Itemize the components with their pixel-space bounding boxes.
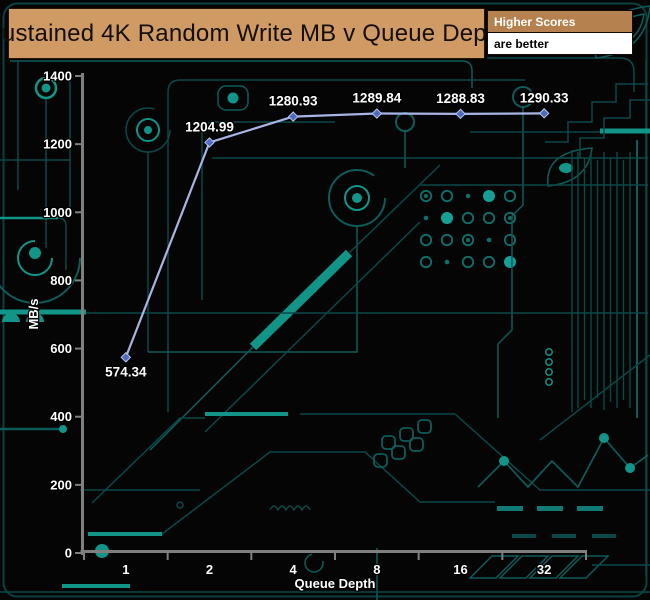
x-tick-label: 1 <box>122 562 129 577</box>
data-point-marker <box>456 109 465 118</box>
x-tick-label: 16 <box>453 562 467 577</box>
y-tick-label: 1000 <box>43 205 72 220</box>
y-tick-label: 200 <box>50 477 72 492</box>
data-point-marker <box>289 112 298 121</box>
y-tick-label: 600 <box>50 341 72 356</box>
x-tick-label: 32 <box>537 562 551 577</box>
data-point-label: 1204.99 <box>185 119 234 134</box>
y-tick-label: 1200 <box>43 137 72 152</box>
legend-box: Higher Scores are better <box>487 10 633 55</box>
y-tick-label: 0 <box>65 546 72 561</box>
x-tick-label: 8 <box>373 562 380 577</box>
screenshot-root: 020040060080010001200140012481632Queue D… <box>0 0 650 600</box>
chart-title: Sustained 4K Random Write MB v Queue Dep… <box>8 8 485 59</box>
data-point-marker <box>540 109 549 118</box>
chart-title-text: Sustained 4K Random Write MB v Queue Dep… <box>0 20 507 48</box>
data-point-marker <box>205 138 214 147</box>
legend-higher-scores: Higher Scores <box>487 10 633 33</box>
data-line <box>126 113 544 357</box>
y-tick-label: 400 <box>50 409 72 424</box>
data-point-label: 1289.84 <box>352 91 401 106</box>
data-point-label: 1290.33 <box>520 90 569 105</box>
data-point-label: 574.34 <box>105 364 147 379</box>
x-tick-label: 2 <box>206 562 213 577</box>
y-axis-title: MB/s <box>26 298 41 329</box>
x-axis-title: Queue Depth <box>295 576 376 591</box>
legend-are-better: are better <box>487 33 633 55</box>
data-point-label: 1280.93 <box>269 94 318 109</box>
data-point-marker <box>372 109 381 118</box>
y-tick-label: 800 <box>50 273 72 288</box>
data-point-label: 1288.83 <box>436 91 485 106</box>
x-tick-label: 4 <box>290 562 298 577</box>
line-chart: 020040060080010001200140012481632Queue D… <box>0 0 650 600</box>
y-tick-label: 1400 <box>43 69 72 84</box>
data-point-marker <box>121 353 130 362</box>
